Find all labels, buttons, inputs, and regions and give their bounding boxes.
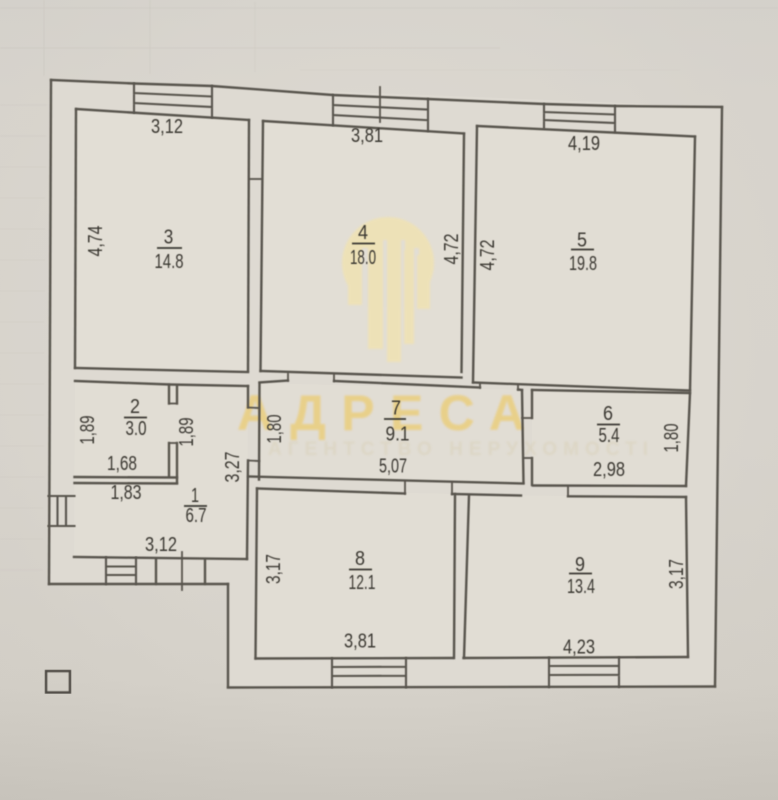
svg-text:1,80: 1,80 — [661, 424, 683, 453]
svg-text:3,81: 3,81 — [351, 125, 383, 147]
svg-text:4: 4 — [358, 222, 368, 244]
svg-text:3,27: 3,27 — [222, 452, 244, 483]
svg-text:18.0: 18.0 — [350, 247, 376, 269]
svg-text:12.1: 12.1 — [349, 572, 376, 594]
svg-text:1,89: 1,89 — [176, 418, 198, 447]
svg-text:5: 5 — [577, 230, 587, 252]
svg-text:1,68: 1,68 — [107, 453, 137, 475]
svg-text:8: 8 — [355, 548, 365, 570]
svg-text:1,89: 1,89 — [77, 416, 99, 445]
svg-text:АГЕНТСТВО НЕРУХОМОСТІ: АГЕНТСТВО НЕРУХОМОСТІ — [268, 439, 648, 460]
svg-text:3,81: 3,81 — [344, 631, 376, 653]
svg-text:6.7: 6.7 — [186, 505, 207, 527]
svg-text:3.0: 3.0 — [126, 418, 147, 440]
svg-text:1,83: 1,83 — [111, 482, 142, 504]
svg-text:13.4: 13.4 — [567, 576, 595, 598]
svg-text:4,74: 4,74 — [85, 226, 107, 257]
svg-text:2: 2 — [130, 396, 140, 418]
svg-text:14.8: 14.8 — [155, 251, 184, 273]
svg-text:1,80: 1,80 — [264, 415, 286, 444]
svg-text:3,12: 3,12 — [145, 534, 177, 556]
svg-text:7: 7 — [391, 398, 401, 420]
svg-text:5.4: 5.4 — [599, 425, 620, 447]
svg-text:5,07: 5,07 — [379, 456, 407, 478]
svg-text:4,72: 4,72 — [441, 234, 463, 265]
svg-text:3,17: 3,17 — [666, 559, 688, 589]
svg-text:3: 3 — [164, 227, 174, 249]
svg-text:6: 6 — [603, 403, 613, 425]
svg-text:4,72: 4,72 — [477, 240, 499, 271]
svg-text:4,23: 4,23 — [563, 637, 595, 659]
svg-text:3,17: 3,17 — [263, 554, 285, 584]
svg-text:2,98: 2,98 — [593, 459, 625, 481]
svg-text:9.1: 9.1 — [386, 424, 410, 446]
svg-text:3,12: 3,12 — [151, 116, 183, 138]
svg-text:19.8: 19.8 — [569, 253, 597, 275]
svg-text:4,19: 4,19 — [568, 133, 600, 155]
svg-text:1: 1 — [191, 485, 199, 507]
